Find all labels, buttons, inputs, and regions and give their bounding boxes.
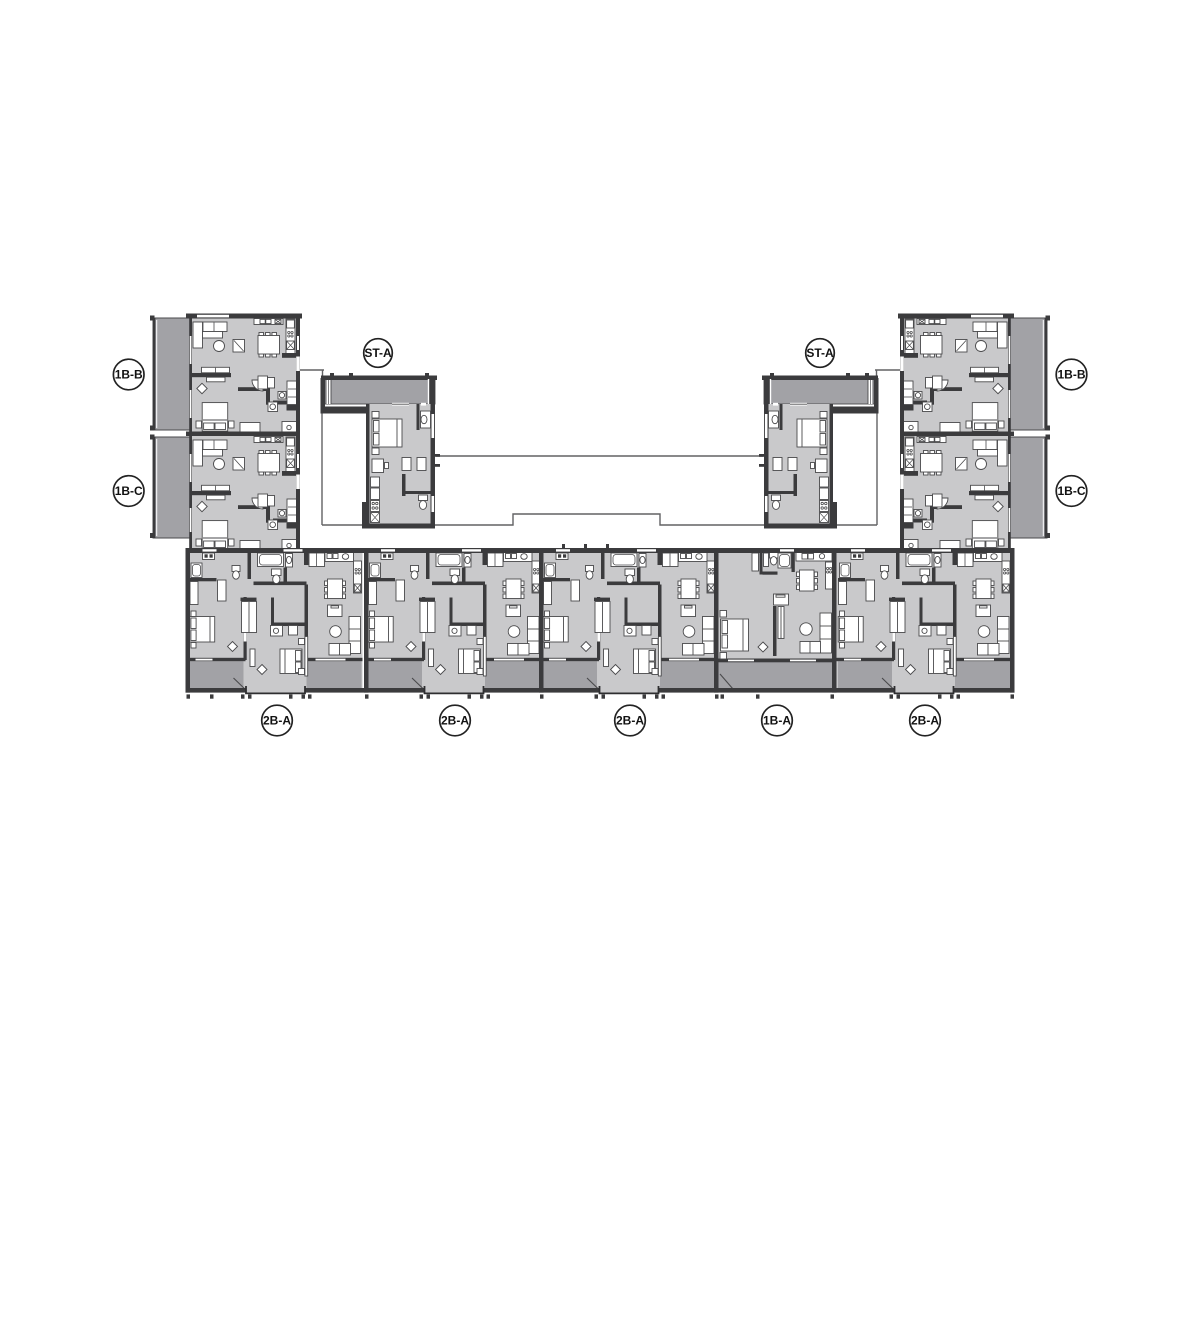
- svg-text:ST-A: ST-A: [806, 346, 834, 360]
- svg-text:2B-A: 2B-A: [911, 714, 939, 728]
- svg-text:1B-B: 1B-B: [115, 368, 143, 382]
- svg-text:1B-A: 1B-A: [763, 714, 791, 728]
- svg-text:ST-A: ST-A: [364, 346, 392, 360]
- svg-text:2B-A: 2B-A: [263, 714, 291, 728]
- svg-text:1B-C: 1B-C: [115, 484, 143, 498]
- svg-text:2B-A: 2B-A: [441, 714, 469, 728]
- svg-text:1B-B: 1B-B: [1057, 368, 1085, 382]
- svg-text:1B-C: 1B-C: [1057, 484, 1085, 498]
- svg-text:2B-A: 2B-A: [616, 714, 644, 728]
